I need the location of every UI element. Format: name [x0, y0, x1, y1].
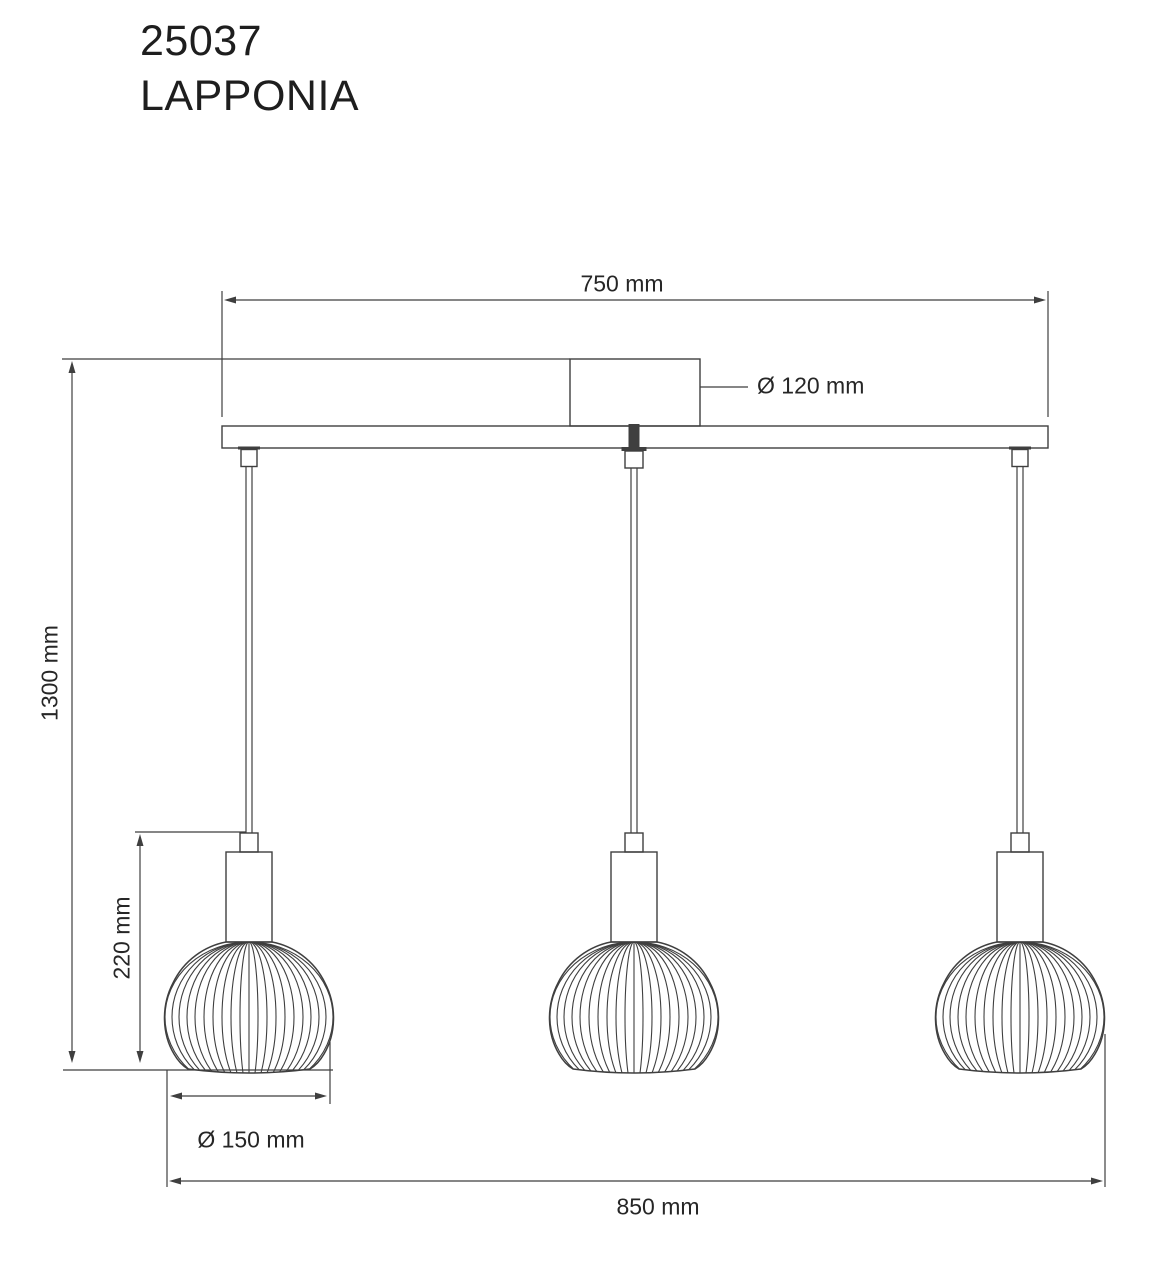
center-rod-assembly: [622, 424, 647, 833]
technical-drawing-page: 25037 LAPPONIA: [0, 0, 1160, 1262]
left-cord-assembly: [238, 447, 260, 834]
shade-diameter-label: Ø 150 mm: [197, 1127, 304, 1154]
ceiling-canopy: [570, 359, 700, 426]
right-cord-assembly: [1009, 447, 1031, 834]
overall-width-label: 850 mm: [616, 1194, 699, 1221]
dimension-1300: [62, 359, 570, 1063]
pendant-shade-right: [935, 833, 1104, 1092]
pendant-shade-left: [164, 833, 333, 1092]
shade-height-label: 220 mm: [109, 896, 136, 979]
pendant-shade-center: [549, 833, 718, 1092]
dimension-750: [222, 291, 1048, 417]
drop-height-label: 1300 mm: [37, 625, 64, 721]
canopy-diameter-label: Ø 120 mm: [757, 372, 864, 399]
rail-width-label: 750 mm: [580, 271, 663, 298]
dimension-850: [167, 1034, 1105, 1187]
pendant-lamp-drawing: [0, 0, 1160, 1262]
